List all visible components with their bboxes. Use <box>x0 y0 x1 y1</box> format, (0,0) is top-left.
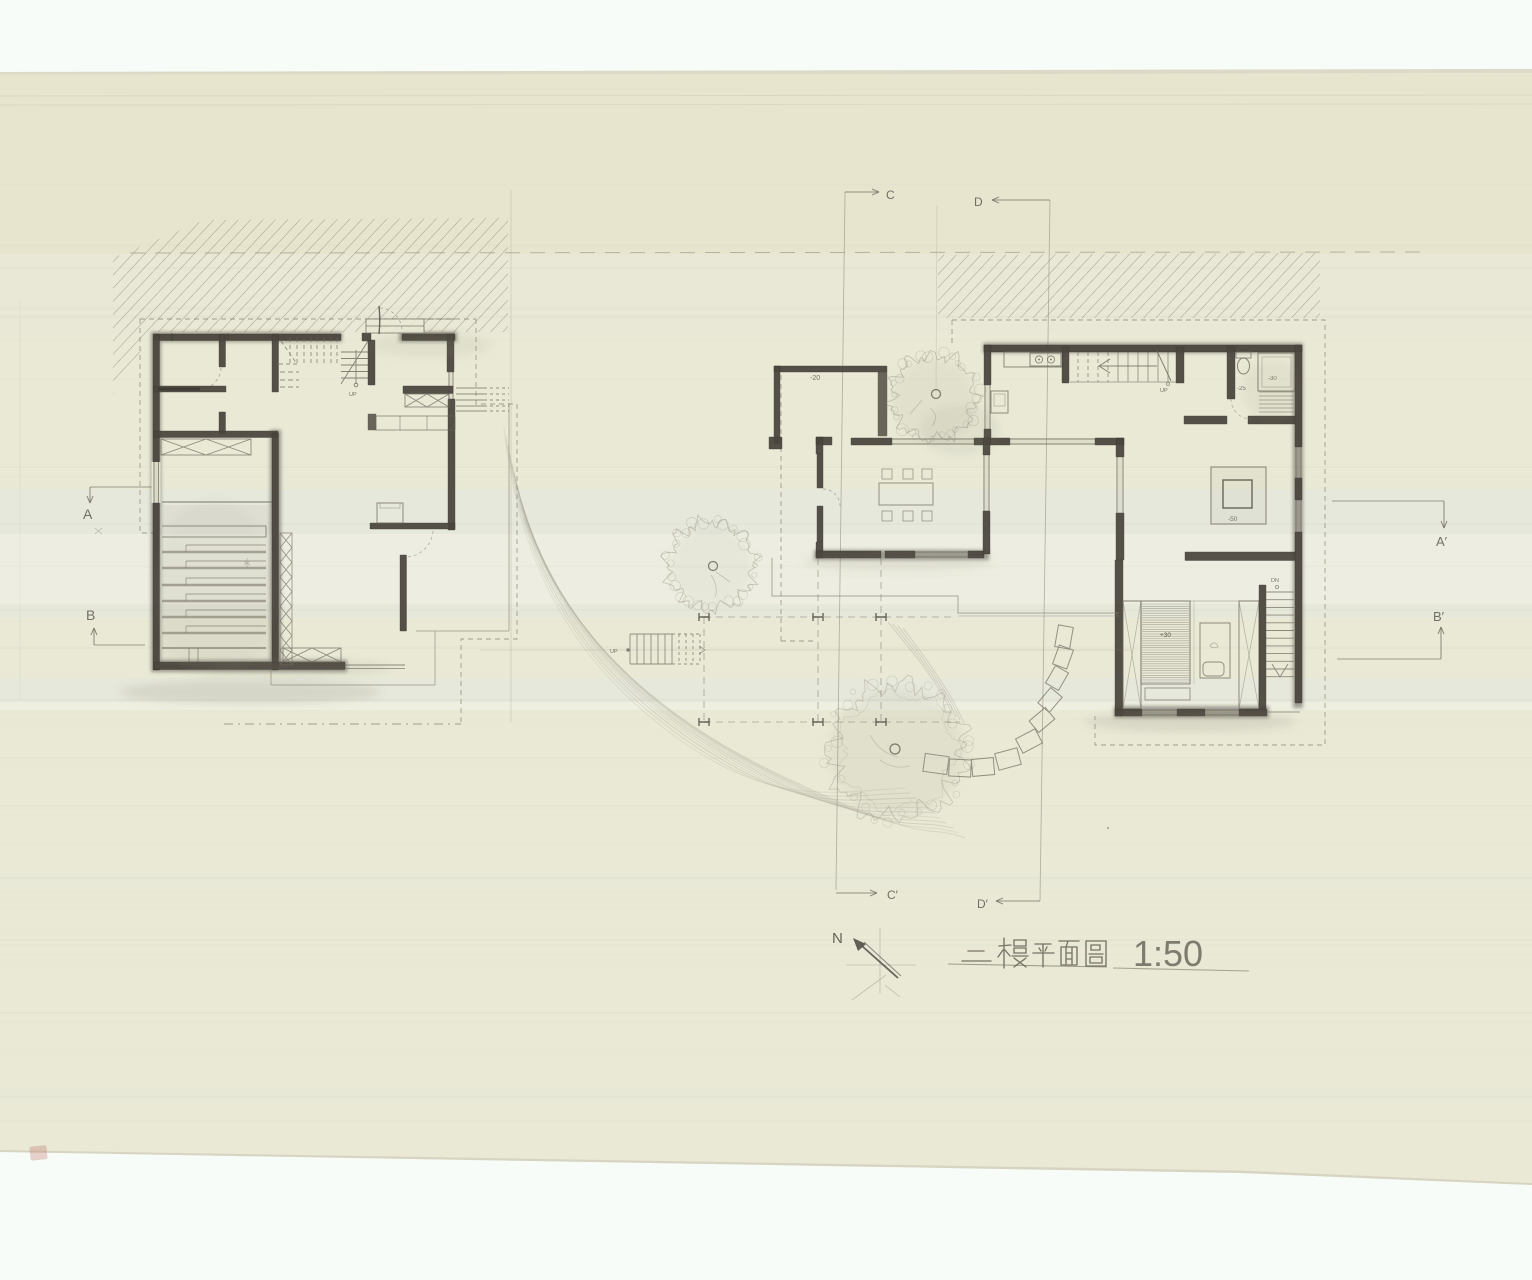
svg-text:N: N <box>832 930 843 947</box>
svg-text:1:50: 1:50 <box>1133 933 1203 974</box>
